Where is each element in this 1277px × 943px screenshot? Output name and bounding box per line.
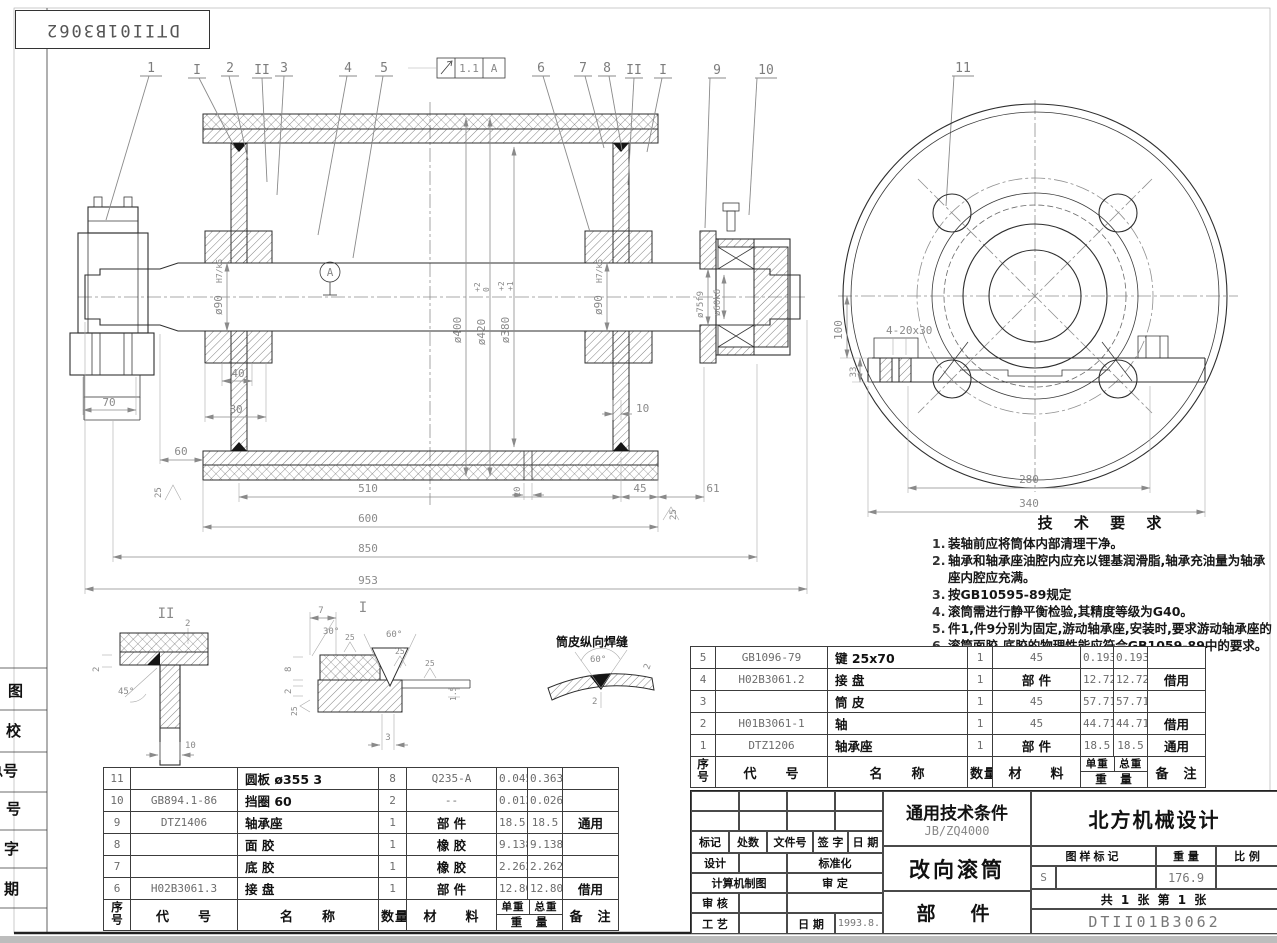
rev-header-doc: 文件号 xyxy=(767,831,813,853)
rev-header-count: 处数 xyxy=(729,831,767,853)
balloon-1: 1 xyxy=(106,61,162,220)
bom-unit-weight: 12.80 xyxy=(497,878,528,900)
bom-header-note: 备 注 xyxy=(563,900,619,931)
tech-req-line: 2.轴承和轴承座油腔内应充以锂基润滑脂,轴承充油量为轴承 xyxy=(930,552,1277,569)
detail-I-dim-15: 1.5 xyxy=(449,686,458,701)
bom-header-name: 名 称 xyxy=(828,757,968,788)
bom-total-weight: 0.363 xyxy=(528,768,563,790)
bom-header-material: 材 料 xyxy=(407,900,497,931)
role-design: 设计 xyxy=(691,853,739,873)
bom-material: 部 件 xyxy=(993,669,1081,691)
dim-10-disc: 10 xyxy=(636,402,649,415)
svg-text:II: II xyxy=(626,63,642,78)
bom-qty: 8 xyxy=(379,768,407,790)
bom-note: 通用 xyxy=(1148,735,1206,757)
bom-seq: 2 xyxy=(691,713,716,735)
border-field-tu: 图 xyxy=(8,680,23,701)
rev-header-date: 日 期 xyxy=(848,831,883,853)
table-row: 1DTZ1206轴承座1部 件18.518.5通用 xyxy=(691,735,1206,757)
border-field-hao: 号 xyxy=(6,798,21,819)
bom-note xyxy=(563,856,619,878)
main-view-dimensions: ø400 ø420 +2 0 ø380 +2 +1 ø90 H7/k6 ø90 … xyxy=(83,118,807,594)
bom-unit-weight: 0.013 xyxy=(497,790,528,812)
border-field-zonghao: 总号 xyxy=(0,760,32,781)
bom-total-weight: 18.5 xyxy=(528,812,563,834)
bom-header-unit-weight: 单重 xyxy=(1081,757,1115,771)
tech-req-no: 4. xyxy=(932,603,948,620)
bom-code: DTZ1206 xyxy=(716,735,828,757)
dim-dia90-left: ø90 xyxy=(212,295,225,315)
dim-953: 953 xyxy=(358,574,378,587)
detail-II-angle-45: 45° xyxy=(118,687,134,697)
table-row: 2H01B3061-1轴14544.7144.71借用 xyxy=(691,713,1206,735)
rev-header-mark: 标记 xyxy=(691,831,729,853)
bom-header-material: 材 料 xyxy=(993,757,1081,788)
detail-II-dim-10: 10 xyxy=(185,741,196,751)
dim-fit90-left: H7/k6 xyxy=(215,259,224,283)
dim-fit90-right: H7/k6 xyxy=(595,259,604,283)
detail-I-dim-8: 8 xyxy=(284,667,294,672)
bom-unit-weight: 57.71 xyxy=(1081,691,1114,713)
bom-header-qty: 数量 xyxy=(379,900,407,931)
bom-unit-weight: 18.5 xyxy=(497,812,528,834)
bom-header-total-weight: 总重 xyxy=(530,900,562,914)
dim-dia420-tol-up: +2 xyxy=(473,282,482,292)
bom-qty: 1 xyxy=(379,812,407,834)
svg-text:I: I xyxy=(193,63,201,78)
bom-note xyxy=(563,834,619,856)
dim-dia60: ø60k6 xyxy=(713,289,723,316)
bom-unit-weight: 0.045 xyxy=(497,768,528,790)
table-row: 10GB894.1-86挡圈 602--0.0130.026 xyxy=(104,790,619,812)
bom-qty: 1 xyxy=(379,856,407,878)
table-row: 5GB1096-79键 25x701450.1930.193 xyxy=(691,647,1206,669)
mark-header-drawing-mark: 图样标记 xyxy=(1031,846,1156,866)
seam-dim-2b: 2 xyxy=(642,663,653,672)
bom-header-weight: 重 量 xyxy=(497,915,562,930)
roughness-25-right: 25 xyxy=(669,509,679,520)
role-craft: 工 艺 xyxy=(691,913,739,934)
svg-text:3: 3 xyxy=(280,61,288,76)
tech-req-text: 座内腔应充满。 xyxy=(948,570,1036,585)
balloon-4: 4 xyxy=(318,61,357,235)
weld-detail-I: I 7 30° 60° 8 2 1.5 3 25 25 25 25 xyxy=(284,600,470,750)
bom-qty: 1 xyxy=(968,713,993,735)
seam-detail-title: 筒皮纵向焊缝 xyxy=(556,634,628,649)
dim-61: 61 xyxy=(706,482,719,495)
border-field-qi: 期 xyxy=(4,878,19,899)
sheet-count: 共 1 张 第 1 张 xyxy=(1031,889,1277,909)
bom-note: 通用 xyxy=(563,812,619,834)
datum-and-tolerance: A 1.1 A xyxy=(320,58,505,295)
bom-code: H02B3061.3 xyxy=(131,878,238,900)
date-label: 日 期 xyxy=(787,913,835,934)
bom-code: GB894.1-86 xyxy=(131,790,238,812)
mirrored-drawing-number: DTII01B3062 xyxy=(45,20,180,40)
bom-qty: 1 xyxy=(968,691,993,713)
dim-510: 510 xyxy=(358,482,378,495)
bom-header-total-weight: 总重 xyxy=(1115,757,1148,771)
tech-req-text: 件1,件9分别为固定,游动轴承座,安装时,要求游动轴承座的 xyxy=(948,621,1272,636)
dim-dia380-tol-dn: +1 xyxy=(506,281,515,291)
bom-material: 橡 胶 xyxy=(407,856,497,878)
bom-seq: 10 xyxy=(104,790,131,812)
bom-unit-weight: 2.262 xyxy=(497,856,528,878)
bom-seq: 8 xyxy=(104,834,131,856)
bom-total-weight: 44.71 xyxy=(1114,713,1148,735)
runout-tolerance-value: 1.1 xyxy=(459,62,479,75)
roughness-25-left: 25 xyxy=(154,487,164,498)
svg-text:5: 5 xyxy=(380,61,388,76)
tech-req-line: 0座内腔应充满。 xyxy=(930,569,1277,586)
bom-code xyxy=(131,768,238,790)
table-row: 6H02B3061.3接 盘1部 件12.8012.80借用 xyxy=(104,878,619,900)
dim-dia90-right: ø90 xyxy=(592,295,605,315)
shell-seam-detail: 筒皮纵向焊缝 60° 2 2 xyxy=(548,634,654,708)
svg-text:7: 7 xyxy=(579,61,587,76)
bom-material: 45 xyxy=(993,647,1081,669)
bom-header-seq: 序号 xyxy=(697,758,709,783)
mark-header-scale: 比 例 xyxy=(1216,846,1277,866)
tech-req-line: 5.件1,件9分别为固定,游动轴承座,安装时,要求游动轴承座的 xyxy=(930,620,1277,637)
bom-code xyxy=(131,834,238,856)
tech-req-line: 1.装轴前应将筒体内部清理干净。 xyxy=(930,535,1277,552)
bom-code: H01B3061-1 xyxy=(716,713,828,735)
bom-seq: 5 xyxy=(691,647,716,669)
bom-seq: 7 xyxy=(104,856,131,878)
part-type: 部 件 xyxy=(883,891,1031,934)
drawing-number: DTII01B3062 xyxy=(1031,909,1277,934)
bom-unit-weight: 0.193 xyxy=(1081,647,1114,669)
detail-II-dim-2-side: 2 xyxy=(92,667,102,672)
bom-header-code: 代 号 xyxy=(716,757,828,788)
svg-text:II: II xyxy=(254,63,270,78)
bom-seq: 6 xyxy=(104,878,131,900)
technical-requirements-title: 技 术 要 求 xyxy=(930,512,1277,533)
detail-I-angle-30: 30° xyxy=(323,627,339,637)
weight-value: 176.9 xyxy=(1156,866,1216,889)
svg-text:9: 9 xyxy=(713,63,721,78)
mark-header-weight: 重 量 xyxy=(1156,846,1216,866)
dim-45: 45 xyxy=(633,482,646,495)
bom-unit-weight: 12.72 xyxy=(1081,669,1114,691)
table-row: 9DTZ1406轴承座1部 件18.518.5通用 xyxy=(104,812,619,834)
tech-req-text: 按GB10595-89规定 xyxy=(948,587,1071,602)
bom-header-note: 备 注 xyxy=(1148,757,1206,788)
bom-total-weight: 0.026 xyxy=(528,790,563,812)
table-row: 7底 胶1橡 胶2.2622.262 xyxy=(104,856,619,878)
dim-340: 340 xyxy=(1019,497,1039,510)
role-cad: 计算机制图 xyxy=(691,873,787,893)
general-spec-code: JB/ZQ4000 xyxy=(924,824,989,838)
bom-material: 45 xyxy=(993,713,1081,735)
bom-unit-weight: 18.5 xyxy=(1081,735,1114,757)
bom-seq: 4 xyxy=(691,669,716,691)
dim-80: 80 xyxy=(229,403,242,416)
bom-name: 轴 xyxy=(828,713,968,735)
dim-dia420: ø420 xyxy=(475,319,488,346)
screen-bottom-strip xyxy=(0,936,1277,943)
bom-name: 接 盘 xyxy=(828,669,968,691)
svg-text:1: 1 xyxy=(147,61,155,76)
detail-I-dim-7: 7 xyxy=(318,606,323,616)
bom-total-weight: 12.80 xyxy=(528,878,563,900)
dim-60: 60 xyxy=(174,445,187,458)
bom-qty: 1 xyxy=(379,834,407,856)
bom-note xyxy=(1148,691,1206,713)
balloon-11: 11 xyxy=(946,61,974,206)
bom-code: H02B3061.2 xyxy=(716,669,828,691)
svg-text:8: 8 xyxy=(603,61,611,76)
bom-name: 挡圈 60 xyxy=(238,790,379,812)
dim-600: 600 xyxy=(358,512,378,525)
detail-I-roughness-a: 25 xyxy=(345,633,355,642)
bom-note xyxy=(1148,647,1206,669)
bom-qty: 2 xyxy=(379,790,407,812)
role-standardization: 标准化 xyxy=(787,853,883,873)
detail-I-roughness-d: 25 xyxy=(290,706,299,716)
general-spec-title: 通用技术条件 xyxy=(906,799,1008,824)
dim-dia420-tol-dn: 0 xyxy=(482,287,491,292)
svg-text:10: 10 xyxy=(758,63,774,78)
bom-material: Q235-A xyxy=(407,768,497,790)
bom-note: 借用 xyxy=(1148,669,1206,691)
border-field-jiao: 校 xyxy=(6,720,21,741)
table-header-row: 序号代 号名 称数量材 料单重总重重 量备 注 xyxy=(104,900,619,931)
role-check: 审 核 xyxy=(691,893,739,913)
bom-material: 部 件 xyxy=(407,878,497,900)
bom-total-weight: 18.5 xyxy=(1114,735,1148,757)
dim-100: 100 xyxy=(832,320,845,340)
bom-name: 轴承座 xyxy=(828,735,968,757)
rev-header-sign: 签 字 xyxy=(813,831,848,853)
bom-table-right: 5GB1096-79键 25x701450.1930.193 4H02B3061… xyxy=(690,646,1206,788)
technical-requirements: 技 术 要 求 1.装轴前应将筒体内部清理干净。 2.轴承和轴承座油腔内应充以锂… xyxy=(930,512,1277,654)
svg-text:6: 6 xyxy=(537,61,545,76)
bom-code xyxy=(716,691,828,713)
title-block: 标记 处数 文件号 签 字 日 期 设计 标准化 计算机制图 审 定 审 核 工… xyxy=(690,790,1277,933)
detail-I-dim-3: 3 xyxy=(385,733,390,743)
tech-req-text: 轴承和轴承座油腔内应充以锂基润滑脂,轴承充油量为轴承 xyxy=(948,553,1265,568)
bom-seq: 1 xyxy=(691,735,716,757)
bom-unit-weight: 9.138 xyxy=(497,834,528,856)
svg-text:2: 2 xyxy=(226,61,234,76)
bom-unit-weight: 44.71 xyxy=(1081,713,1114,735)
table-row: 4H02B3061.2接 盘1部 件12.7212.72借用 xyxy=(691,669,1206,691)
tech-req-line: 4.滚筒需进行静平衡检验,其精度等级为G40。 xyxy=(930,603,1277,620)
bom-name: 轴承座 xyxy=(238,812,379,834)
dim-70: 70 xyxy=(102,396,115,409)
detail-I-dim-2: 2 xyxy=(284,689,294,694)
bom-total-weight: 57.71 xyxy=(1114,691,1148,713)
detail-I-roughness-b: 25 xyxy=(395,647,405,656)
dim-bolt-slots: 4-20x30 xyxy=(886,324,932,337)
tech-req-line: 3.按GB10595-89规定 xyxy=(930,586,1277,603)
mirrored-drawing-number-box: DTII01B3062 xyxy=(15,10,210,49)
bom-header-unit-weight: 单重 xyxy=(497,900,530,914)
bom-note: 借用 xyxy=(1148,713,1206,735)
bom-table-left: 11圆板 ø355 38Q235-A0.0450.363 10GB894.1-8… xyxy=(103,767,619,931)
bom-total-weight: 0.193 xyxy=(1114,647,1148,669)
tech-req-no: 3. xyxy=(932,586,948,603)
bom-qty: 1 xyxy=(968,647,993,669)
bom-material: 橡 胶 xyxy=(407,834,497,856)
table-header-row: 序号代 号名 称数量材 料单重总重重 量备 注 xyxy=(691,757,1206,788)
dim-10-mid: 10 xyxy=(513,487,523,498)
bom-seq: 11 xyxy=(104,768,131,790)
tech-req-no: 1. xyxy=(932,535,948,552)
bom-header-name: 名 称 xyxy=(238,900,379,931)
bom-name: 接 盘 xyxy=(238,878,379,900)
bom-qty: 1 xyxy=(379,878,407,900)
bom-name: 键 25x70 xyxy=(828,647,968,669)
detail-I-roughness-c: 25 xyxy=(425,659,435,668)
svg-text:4: 4 xyxy=(344,61,352,76)
bom-header-weight: 重 量 xyxy=(1081,772,1147,787)
dim-dia400: ø400 xyxy=(451,317,464,344)
bom-total-weight: 2.262 xyxy=(528,856,563,878)
dim-40: 40 xyxy=(231,367,244,380)
dim-280: 280 xyxy=(1019,473,1039,486)
bom-qty: 1 xyxy=(968,669,993,691)
tech-req-text: 滚筒需进行静平衡检验,其精度等级为G40。 xyxy=(948,604,1193,619)
tech-req-text: 装轴前应将筒体内部清理干净。 xyxy=(948,536,1123,551)
seam-dim-2a: 2 xyxy=(592,697,597,707)
company-name: 北方机械设计 xyxy=(1031,791,1277,846)
bom-name: 筒 皮 xyxy=(828,691,968,713)
bom-seq: 3 xyxy=(691,691,716,713)
bom-material: 部 件 xyxy=(993,735,1081,757)
dim-33: 33 xyxy=(849,367,859,378)
bom-name: 底 胶 xyxy=(238,856,379,878)
detail-II-label: II xyxy=(158,606,175,622)
dim-dia75: ø75f9 xyxy=(696,291,706,318)
bom-name: 圆板 ø355 3 xyxy=(238,768,379,790)
border-field-zi: 字 xyxy=(4,838,19,859)
bom-header-code: 代 号 xyxy=(131,900,238,931)
bom-code xyxy=(131,856,238,878)
dim-850: 850 xyxy=(358,542,378,555)
datum-a-label: A xyxy=(327,266,334,279)
end-view-linework xyxy=(838,100,1238,492)
bom-note: 借用 xyxy=(563,878,619,900)
svg-text:11: 11 xyxy=(955,61,971,76)
table-row: 11圆板 ø355 38Q235-A0.0450.363 xyxy=(104,768,619,790)
bom-code: DTZ1406 xyxy=(131,812,238,834)
bom-code: GB1096-79 xyxy=(716,647,828,669)
detail-II-dim-2-top: 2 xyxy=(185,619,190,629)
bom-material: -- xyxy=(407,790,497,812)
detail-I-angle-60: 60° xyxy=(386,630,402,640)
dim-dia380-tol-up: +2 xyxy=(497,281,506,291)
tech-req-no: 5. xyxy=(932,620,948,637)
seam-angle-60: 60° xyxy=(590,655,606,665)
balloon-5: 5 xyxy=(353,61,393,258)
bom-name: 面 胶 xyxy=(238,834,379,856)
balloon-6: 6 xyxy=(532,61,590,232)
bom-note xyxy=(563,790,619,812)
runout-tolerance-datum: A xyxy=(491,62,498,75)
bom-total-weight: 9.138 xyxy=(528,834,563,856)
bom-header-seq: 序号 xyxy=(111,901,123,926)
bom-qty: 1 xyxy=(968,735,993,757)
dim-dia380: ø380 xyxy=(499,317,512,344)
engineering-drawing-sheet: { "ink": "#1a1a1a", "dim_color": "#8a8a8… xyxy=(0,0,1277,943)
weld-detail-II: II 2 45° 2 10 xyxy=(92,606,208,765)
svg-text:I: I xyxy=(659,63,667,78)
bom-seq: 9 xyxy=(104,812,131,834)
bom-material: 部 件 xyxy=(407,812,497,834)
balloon-10: 10 xyxy=(749,63,777,215)
table-row: 8面 胶1橡 胶9.1389.138 xyxy=(104,834,619,856)
bom-note xyxy=(563,768,619,790)
role-approve: 审 定 xyxy=(787,873,883,893)
tech-req-no: 2. xyxy=(932,552,948,569)
mark-s: S xyxy=(1031,866,1056,889)
bom-material: 45 xyxy=(993,691,1081,713)
product-name: 改向滚筒 xyxy=(883,846,1031,891)
detail-I-label: I xyxy=(359,600,367,616)
bom-total-weight: 12.72 xyxy=(1114,669,1148,691)
table-row: 3筒 皮14557.7157.71 xyxy=(691,691,1206,713)
date-value: 1993.8. xyxy=(835,913,883,934)
bom-header-qty: 数量 xyxy=(968,757,993,788)
